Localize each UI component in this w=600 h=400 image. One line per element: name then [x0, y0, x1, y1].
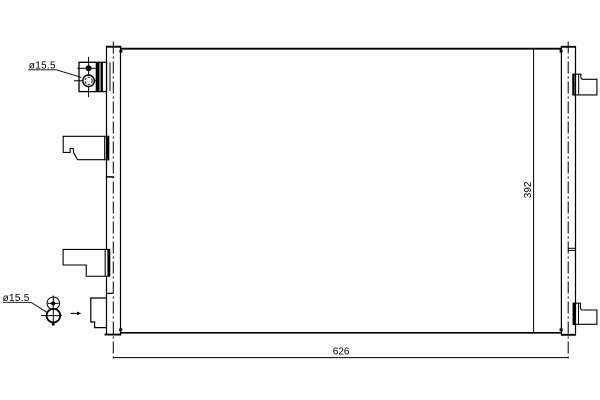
svg-text:392: 392 — [523, 181, 534, 198]
svg-text:626: 626 — [333, 347, 350, 358]
